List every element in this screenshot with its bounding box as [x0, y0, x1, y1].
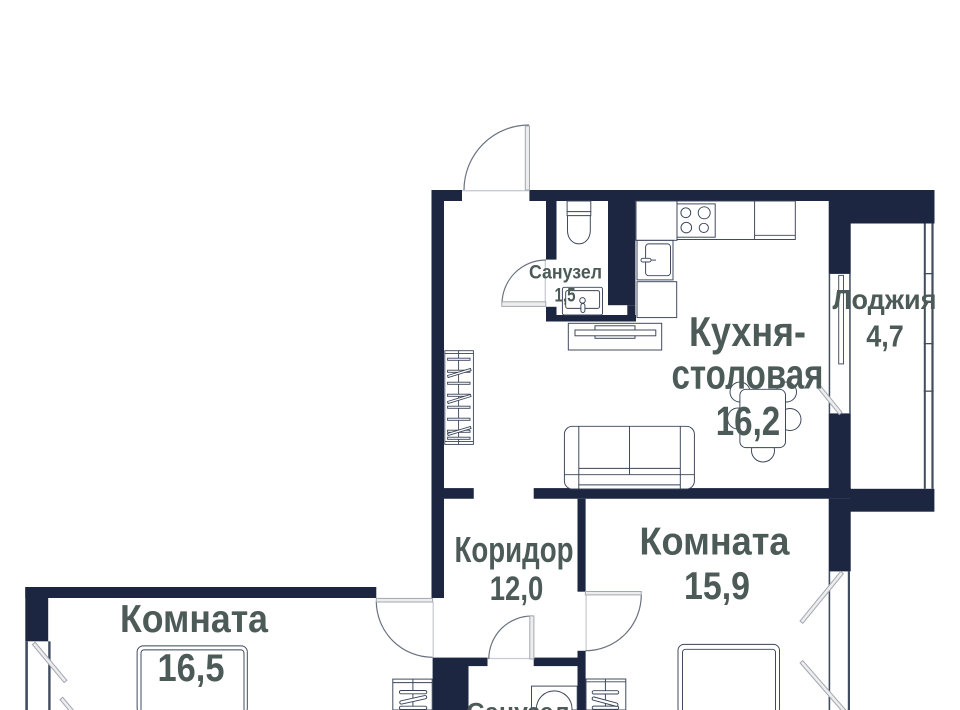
svg-text:1,5: 1,5 — [555, 286, 576, 307]
svg-text:Коридор: Коридор — [455, 529, 574, 570]
svg-text:Комната: Комната — [120, 598, 268, 641]
svg-text:Санузел: Санузел — [467, 699, 570, 710]
svg-text:Кухня-: Кухня- — [689, 308, 806, 355]
svg-text:15,9: 15,9 — [684, 565, 750, 608]
svg-text:Комната: Комната — [640, 521, 790, 564]
svg-text:12,0: 12,0 — [490, 570, 544, 608]
svg-text:Санузел: Санузел — [529, 263, 602, 284]
svg-text:16,2: 16,2 — [716, 398, 781, 444]
svg-text:16,5: 16,5 — [158, 647, 225, 690]
svg-text:Лоджия: Лоджия — [833, 284, 937, 315]
svg-text:столовая: столовая — [672, 351, 824, 398]
svg-text:4,7: 4,7 — [866, 318, 904, 353]
